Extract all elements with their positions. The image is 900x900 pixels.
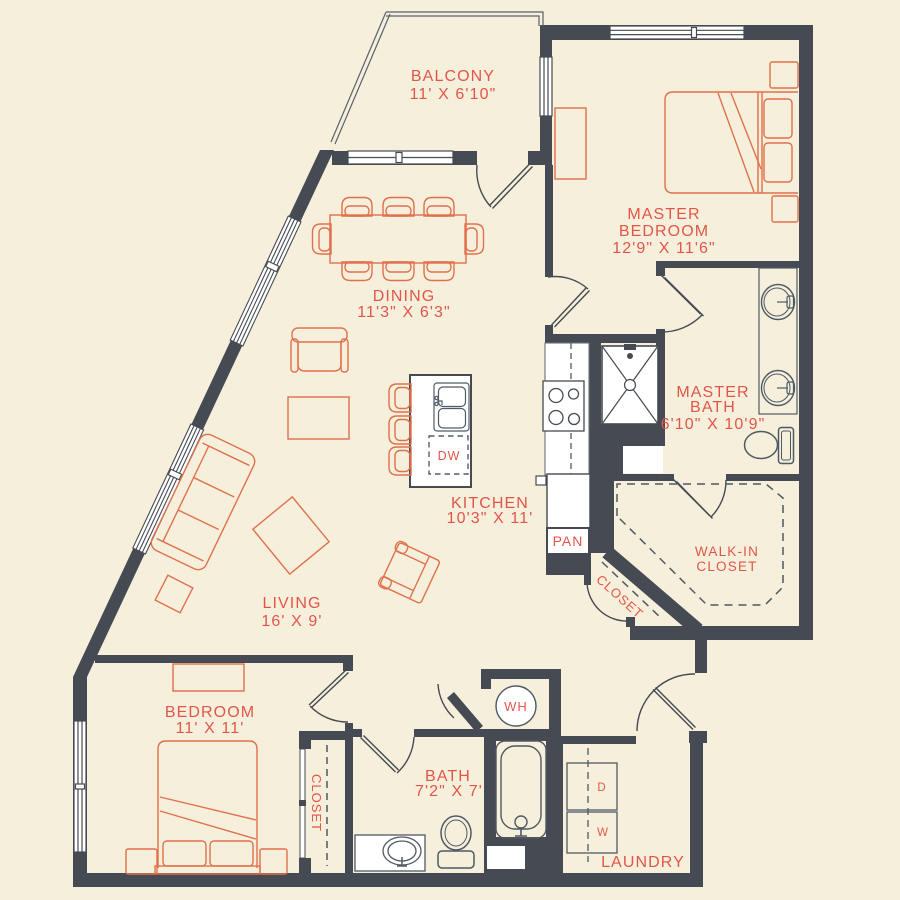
svg-text:11' X 11': 11' X 11' bbox=[176, 720, 245, 737]
svg-text:11' X 6'10": 11' X 6'10" bbox=[410, 86, 497, 103]
svg-text:7'2" X 7': 7'2" X 7' bbox=[415, 783, 483, 800]
svg-text:MASTER: MASTER bbox=[627, 206, 700, 223]
svg-text:BATH: BATH bbox=[690, 399, 736, 416]
svg-text:WALK-IN: WALK-IN bbox=[695, 544, 759, 559]
svg-text:CLOSET: CLOSET bbox=[696, 559, 757, 574]
svg-text:DW: DW bbox=[438, 449, 461, 463]
svg-text:CLOSET: CLOSET bbox=[309, 774, 324, 832]
svg-text:D: D bbox=[597, 782, 606, 794]
svg-text:10'3" X 11': 10'3" X 11' bbox=[447, 510, 534, 527]
svg-text:BEDROOM: BEDROOM bbox=[619, 223, 709, 240]
svg-text:PAN: PAN bbox=[553, 533, 584, 549]
svg-text:16' X 9': 16' X 9' bbox=[261, 613, 322, 630]
svg-text:WH: WH bbox=[504, 699, 528, 714]
svg-text:W: W bbox=[597, 827, 609, 839]
svg-text:6'10" X 10'9": 6'10" X 10'9" bbox=[661, 416, 766, 433]
svg-text:LIVING: LIVING bbox=[262, 595, 321, 612]
svg-text:DINING: DINING bbox=[373, 288, 436, 305]
svg-text:BEDROOM: BEDROOM bbox=[165, 704, 255, 721]
svg-text:12'9" X 11'6": 12'9" X 11'6" bbox=[612, 240, 716, 257]
svg-text:11'3" X 6'3": 11'3" X 6'3" bbox=[357, 304, 451, 321]
svg-text:LAUNDRY: LAUNDRY bbox=[601, 854, 685, 871]
svg-text:BALCONY: BALCONY bbox=[411, 68, 495, 85]
